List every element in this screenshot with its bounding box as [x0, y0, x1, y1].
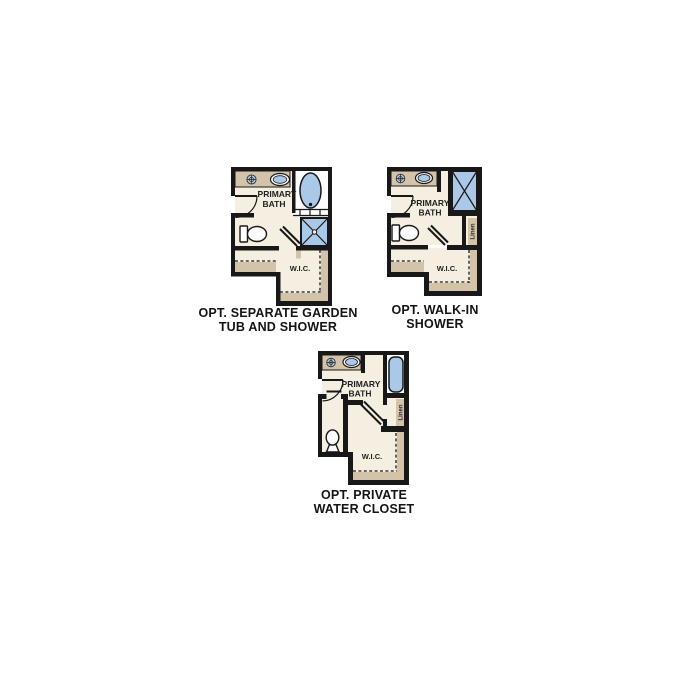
sink-icon	[416, 173, 433, 184]
floorplan-sheet: PRIMARY BATH W.I.C.	[0, 0, 687, 687]
faucet-icon	[327, 358, 336, 367]
caption-line: WATER CLOSET	[298, 503, 430, 517]
room-label-bath: BATH	[263, 199, 286, 209]
wic-label: W.I.C.	[437, 264, 457, 273]
garden-tub-icon	[293, 171, 328, 216]
walk-in-shower-icon	[452, 171, 477, 211]
caption-walk-in-shower: OPT. WALK-IN SHOWER	[373, 304, 497, 331]
toilet-icon	[240, 226, 267, 242]
room-label-primary: PRIMARY	[258, 189, 297, 199]
room-label-primary: PRIMARY	[411, 198, 450, 208]
sink-icon	[343, 357, 360, 368]
caption-line: OPT. PRIVATE	[298, 489, 430, 503]
wic-label: W.I.C.	[362, 452, 382, 461]
toilet-icon	[392, 225, 419, 241]
faucet-icon	[396, 174, 405, 183]
linen-label: Linen	[399, 404, 405, 420]
faucet-icon	[247, 175, 256, 184]
floorplan-garden-tub-shower: PRIMARY BATH W.I.C.	[231, 167, 332, 306]
floorplan-walk-in-shower: PRIMARY BATH W.I.C. Linen	[387, 167, 482, 296]
toilet-icon	[326, 430, 341, 453]
caption-line: TUB AND SHOWER	[197, 321, 359, 335]
wic-label: W.I.C.	[290, 264, 310, 273]
linen-label: Linen	[471, 223, 477, 239]
caption-line: SHOWER	[373, 318, 497, 332]
caption-line: OPT. WALK-IN	[373, 304, 497, 318]
caption-private-water-closet: OPT. PRIVATE WATER CLOSET	[298, 489, 430, 516]
soaking-tub-icon	[387, 355, 404, 394]
caption-line: OPT. SEPARATE GARDEN	[197, 307, 359, 321]
floorplans-graphic: PRIMARY BATH W.I.C.	[0, 0, 687, 687]
room-label-bath: BATH	[349, 389, 372, 399]
caption-garden-tub-shower: OPT. SEPARATE GARDEN TUB AND SHOWER	[197, 307, 359, 334]
room-label-primary: PRIMARY	[342, 379, 381, 389]
shower-icon	[301, 218, 328, 246]
floorplan-private-water-closet: PRIMARY BATH W.I.C. Linen	[318, 351, 409, 485]
room-label-bath: BATH	[419, 208, 442, 218]
sink-icon	[271, 174, 290, 186]
